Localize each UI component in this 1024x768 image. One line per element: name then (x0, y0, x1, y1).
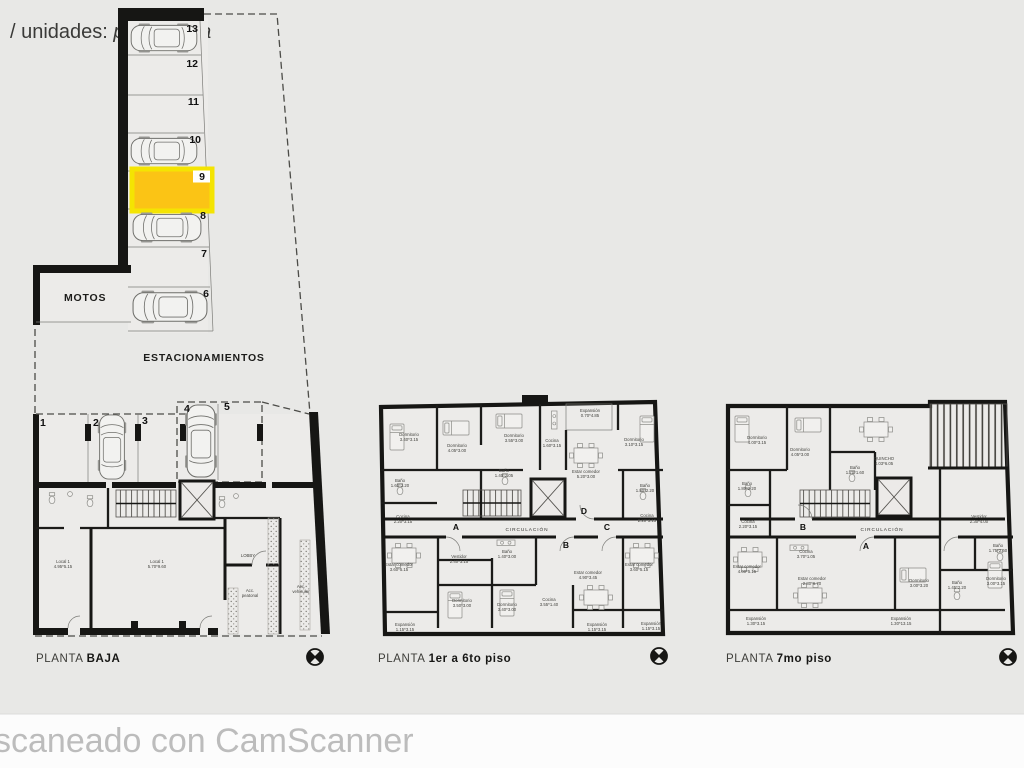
planta-1a6-title: PLANTA 1er a 6to piso (378, 653, 511, 665)
estacionamientos-label: ESTACIONAMIENTOS (143, 352, 265, 364)
car-icon (185, 405, 217, 477)
wall (36, 628, 68, 635)
bed-icon (496, 414, 522, 428)
unit-letter: A (453, 522, 459, 532)
svg-text:Expansión1.30*3.15: Expansión1.30*3.15 (746, 616, 767, 626)
door-jamb (179, 621, 186, 634)
toilet-icon (49, 493, 55, 504)
svg-text:Dormitorio4.05*3.00: Dormitorio4.05*3.00 (447, 443, 467, 453)
unit-letter: C (604, 522, 610, 532)
camscanner-watermark: scaneado con CamScanner (0, 722, 414, 760)
baja-floor-area (36, 414, 325, 634)
svg-text:Vestidor2.40*3.15: Vestidor2.40*3.15 (450, 554, 469, 564)
svg-text:Dormitorio3.55*3.00: Dormitorio3.55*3.00 (504, 433, 524, 443)
unit-letter: A (863, 541, 869, 551)
hatch-band (228, 588, 238, 634)
space-number: 8 (200, 210, 206, 222)
wall (208, 628, 218, 635)
bed-icon (795, 418, 821, 432)
car-icon (98, 415, 126, 479)
planta-baja-title: PLANTA BAJA (36, 653, 120, 665)
wall (272, 482, 314, 488)
plan-drawing: / unidades: planimetria 13 (0, 0, 1024, 768)
elevator (531, 479, 565, 517)
wall-stub (257, 424, 263, 441)
north-arrow-icon (651, 648, 667, 664)
svg-text:Expansión1.15*3.15: Expansión1.15*3.15 (641, 621, 662, 631)
kitchen-counter-icon (552, 411, 558, 429)
space-number: 12 (186, 58, 198, 70)
elevator (180, 481, 214, 519)
planta-baja-plan: 1 2 3 4 5 (33, 401, 330, 635)
toilet-icon (954, 589, 960, 600)
space-number: 6 (203, 288, 209, 300)
svg-text:Dormitorio4.05*3.00: Dormitorio4.05*3.00 (790, 447, 810, 457)
hatch-band (268, 518, 279, 634)
kitchen-counter-icon (497, 540, 515, 546)
space-number: 13 (186, 23, 198, 35)
svg-text:Expansión1.15*3.15: Expansión1.15*3.15 (587, 622, 608, 632)
unit-letter: D (581, 506, 587, 516)
wall-motos-left (33, 265, 40, 325)
space-number: 2 (93, 417, 99, 429)
svg-text:Dormitorio3.40*3.15: Dormitorio3.40*3.15 (399, 432, 419, 442)
sink-icon (68, 492, 73, 497)
circulacion-label: CIRCULACIÓN (861, 526, 904, 533)
space-number: 4 (184, 403, 190, 415)
wall-stub (135, 424, 141, 441)
north-arrow-icon (307, 649, 323, 665)
toilet-icon (219, 497, 225, 508)
planta-1a6-plan: A B C D CIRCULACIÓN Dormitorio3.40*3.15 … (381, 395, 663, 634)
svg-text:LOBBY: LOBBY (241, 553, 255, 558)
svg-text:Expansión0.70*4.85: Expansión0.70*4.85 (580, 408, 601, 418)
wall (214, 482, 266, 488)
space-number: 5 (224, 401, 230, 413)
space-number: 7 (201, 248, 207, 260)
wall (112, 482, 176, 488)
planta-7mo-title: PLANTA 7mo piso (726, 653, 832, 665)
svg-text:Dormitorio3.00*3.20: Dormitorio3.00*3.20 (909, 578, 929, 588)
toilet-icon (87, 496, 93, 507)
svg-text:Dormitorio4.00*3.15: Dormitorio4.00*3.15 (747, 435, 767, 445)
svg-text:Dormitorio3.40*3.00: Dormitorio3.40*3.00 (497, 602, 517, 612)
svg-text:Dormitorio3.50*3.00: Dormitorio3.50*3.00 (452, 598, 472, 608)
bed-icon (443, 421, 469, 435)
svg-text:QUINCHO4.03*6.05: QUINCHO4.03*6.05 (874, 456, 895, 466)
wall-stub (180, 424, 186, 441)
wall-motos-top (33, 265, 131, 273)
unit-letter: B (800, 522, 806, 532)
space-number: 1 (40, 417, 46, 429)
svg-text:Expansión1.15*3.15: Expansión1.15*3.15 (395, 622, 416, 632)
svg-text:Vestidor2.30*4.00: Vestidor2.30*4.00 (970, 514, 989, 524)
unit-letter: B (563, 540, 569, 550)
door-jamb (131, 621, 138, 634)
baja-wall-left (33, 414, 39, 635)
svg-text:Dormitorio3.10*3.15: Dormitorio3.10*3.15 (624, 437, 644, 447)
north-arrow-icon (1000, 649, 1016, 665)
motos-label: MOTOS (64, 292, 106, 304)
svg-text:Dormitorio3.00*3.15: Dormitorio3.00*3.15 (986, 576, 1006, 586)
pergola-deck (930, 404, 1007, 468)
circulacion-label: CIRCULACIÓN (506, 526, 549, 533)
planta-7mo-plan: A B CIRCULACIÓN Dormitorio4.00*3.15 Dorm… (728, 402, 1013, 633)
car-icon (131, 136, 197, 165)
space-number: 10 (189, 134, 201, 146)
watermark-strip: scaneado con CamScanner (0, 714, 1024, 768)
wall-stub (85, 424, 91, 441)
space-number: 3 (142, 415, 148, 427)
wall-notch (522, 395, 548, 404)
scanned-floorplan-sheet: / unidades: planimetria 13 (0, 0, 1024, 768)
elevator (877, 478, 911, 516)
wall-top-bar (118, 8, 204, 21)
sink-icon (234, 494, 239, 499)
wall (36, 482, 106, 488)
space-number: 11 (188, 96, 199, 108)
svg-text:Expansión1.30*13.15: Expansión1.30*13.15 (891, 616, 912, 626)
car-icon (133, 291, 207, 324)
car-icon (133, 212, 201, 242)
space-number: 9 (199, 171, 205, 183)
wall-parking-left (118, 8, 128, 273)
